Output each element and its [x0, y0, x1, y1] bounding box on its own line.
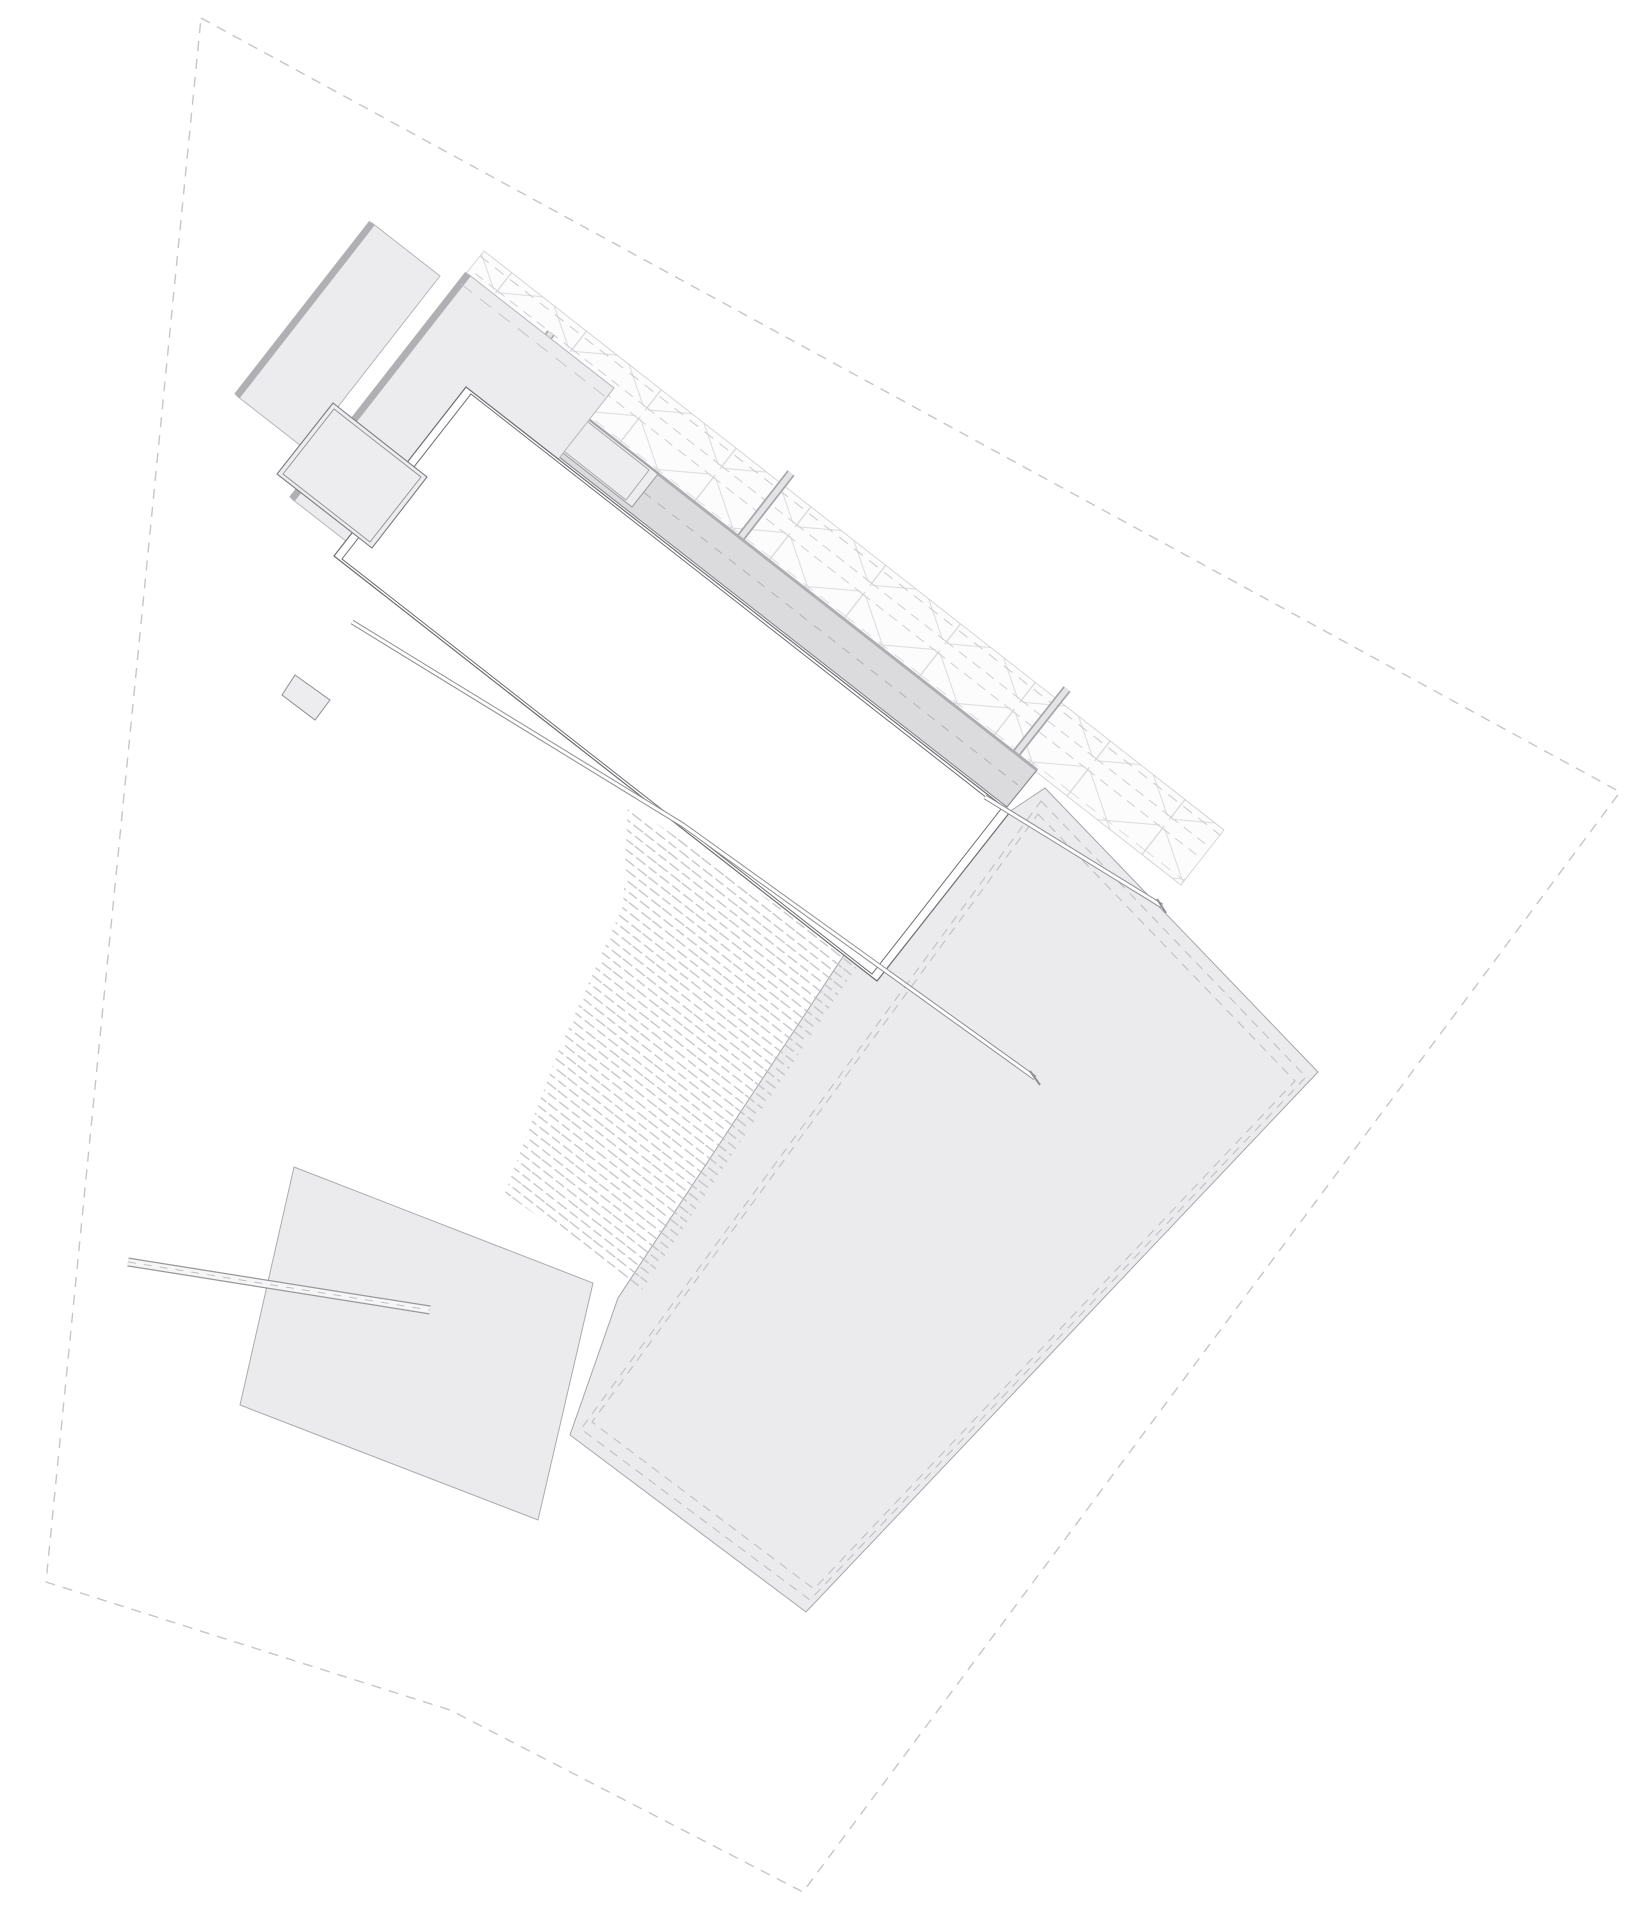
site-plan-canvas [0, 0, 1648, 1920]
secondary-plot [240, 1167, 593, 1520]
entry-stub [282, 675, 330, 720]
